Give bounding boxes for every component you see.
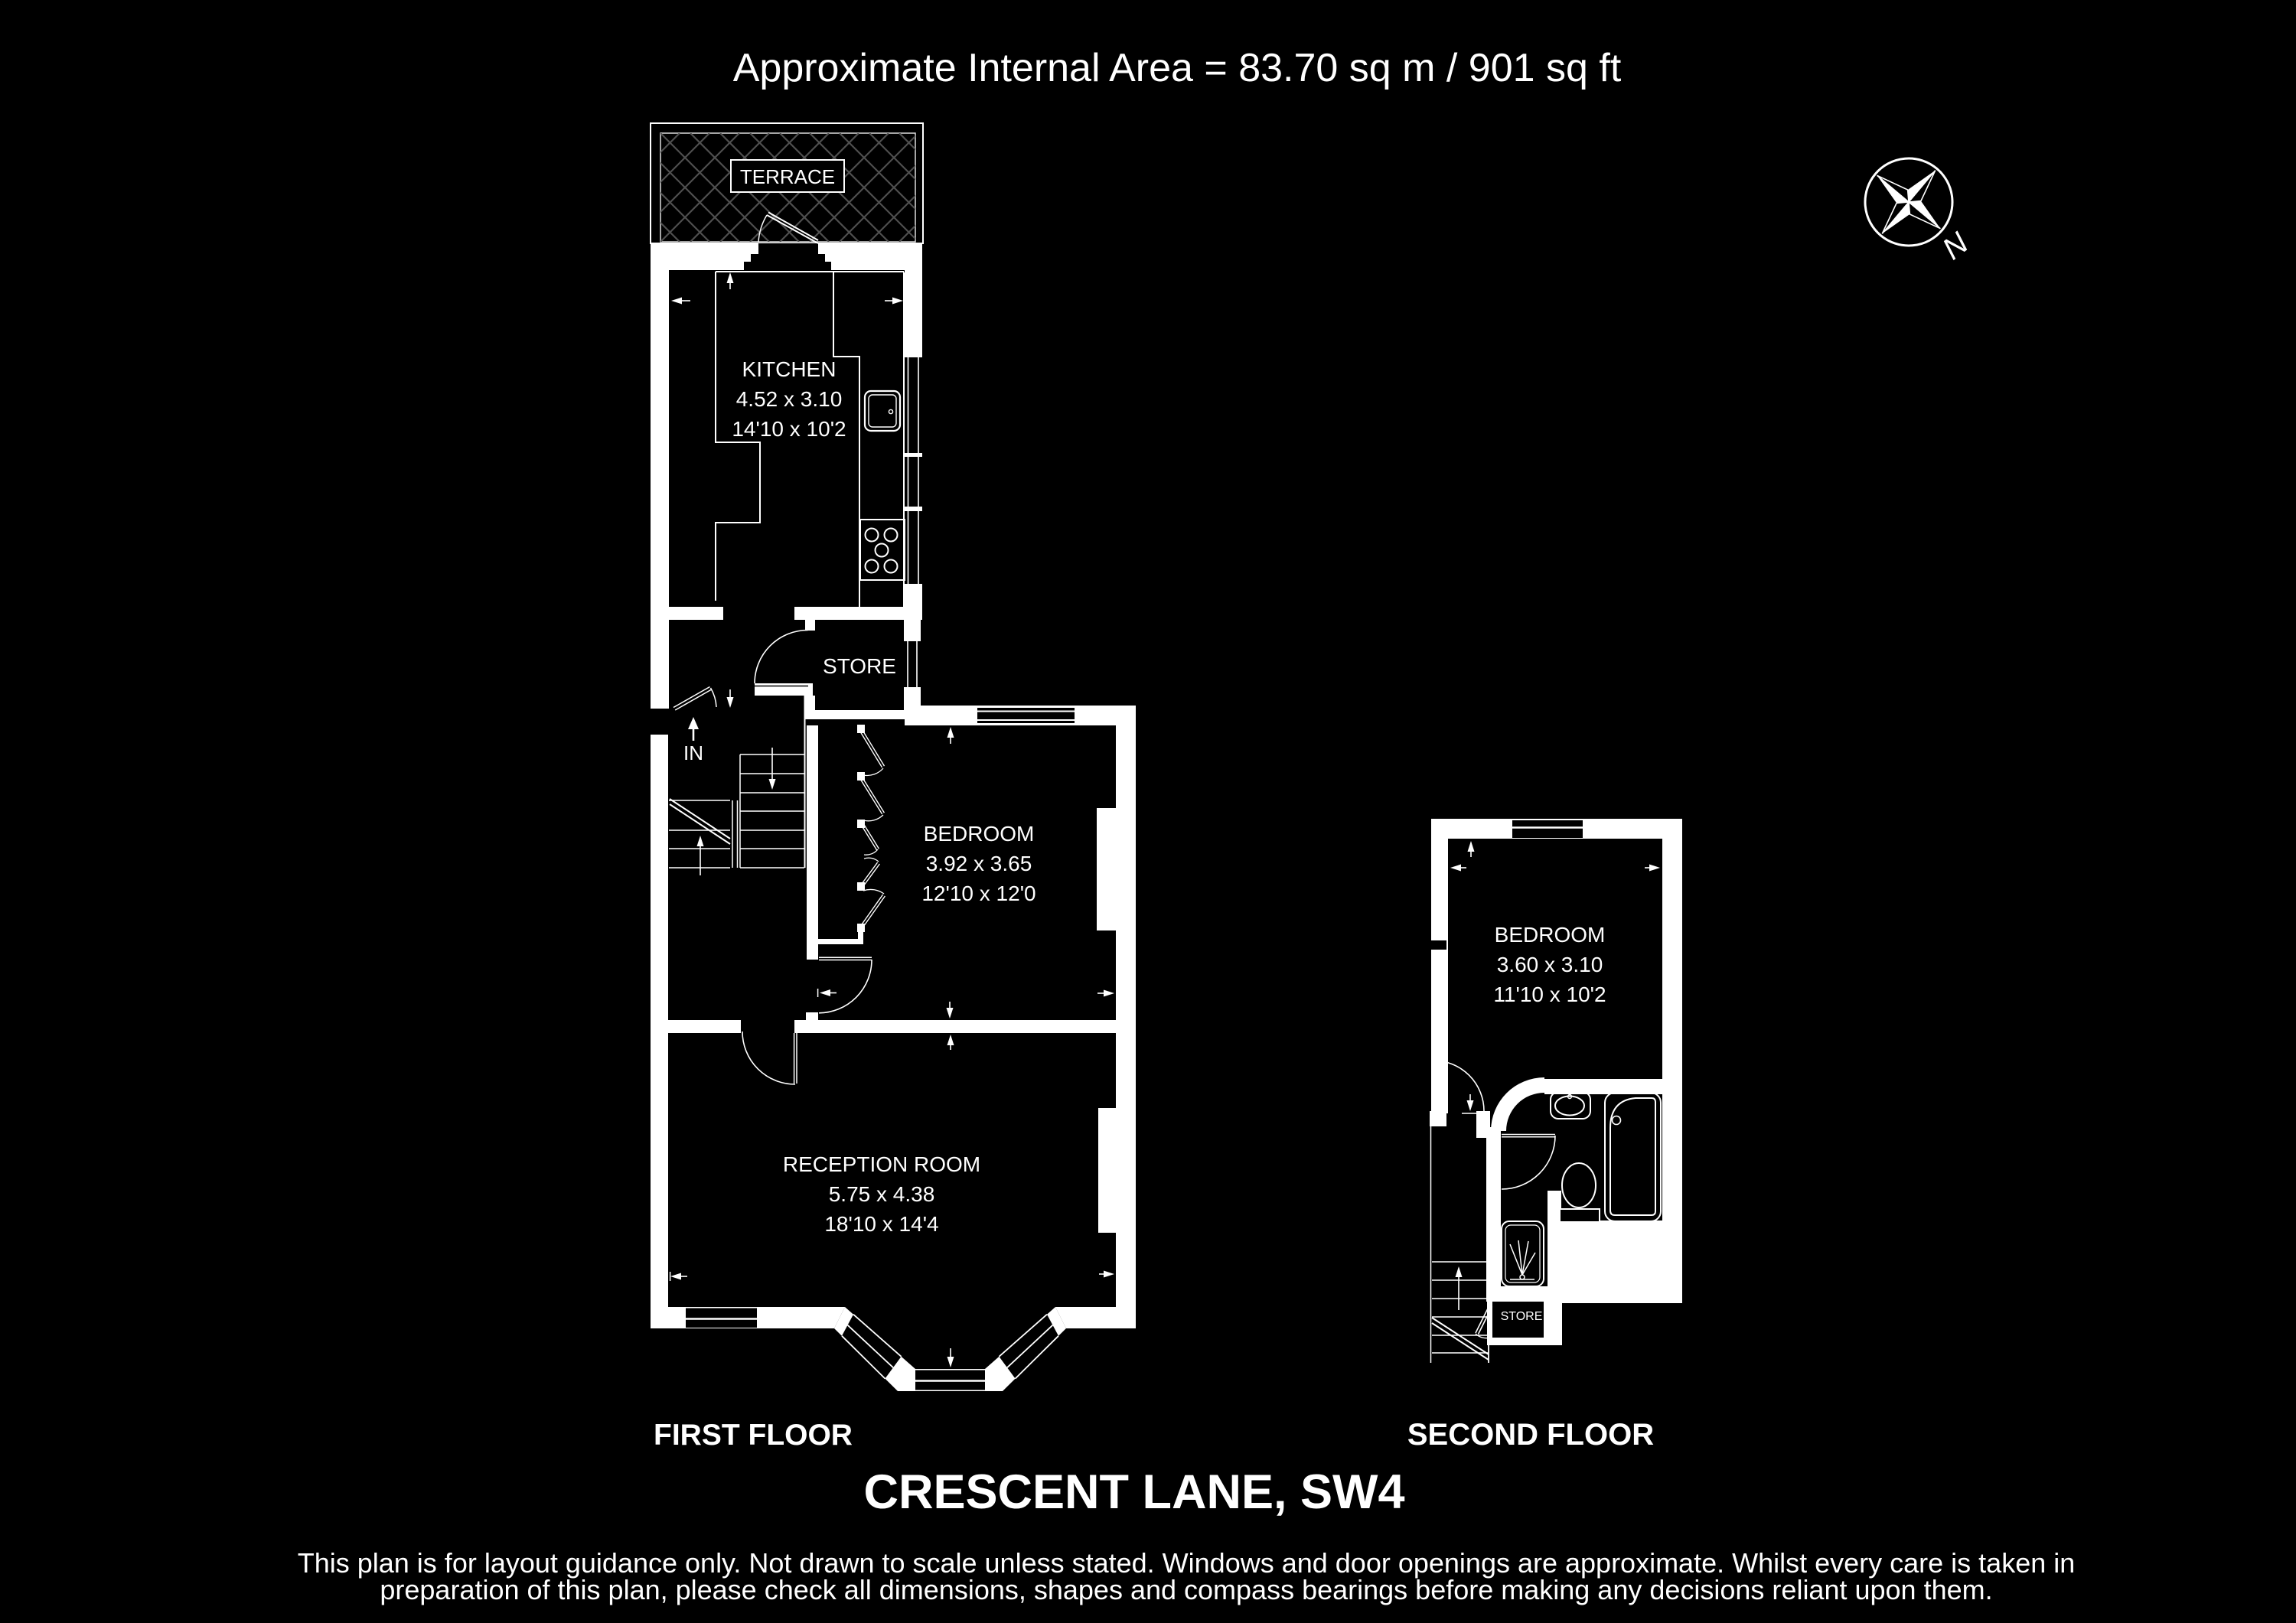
svg-text:STORE: STORE [1501,1310,1543,1323]
svg-text:SECOND FLOOR: SECOND FLOOR [1407,1418,1654,1452]
svg-text:3.92 x 3.65: 3.92 x 3.65 [926,852,1032,875]
svg-text:STORE: STORE [823,654,896,678]
svg-text:BEDROOM: BEDROOM [924,822,1035,846]
svg-text:FIRST FLOOR: FIRST FLOOR [654,1419,853,1452]
svg-text:KITCHEN: KITCHEN [742,357,837,381]
svg-text:CRESCENT LANE, SW4: CRESCENT LANE, SW4 [863,1465,1404,1519]
svg-text:18'10 x 14'4: 18'10 x 14'4 [824,1212,938,1236]
svg-text:IN: IN [683,741,703,764]
svg-text:3.60 x 3.10: 3.60 x 3.10 [1497,953,1603,976]
svg-text:4.52 x 3.10: 4.52 x 3.10 [736,387,843,411]
svg-text:TERRACE: TERRACE [740,165,835,188]
svg-text:BEDROOM: BEDROOM [1495,923,1606,947]
svg-text:RECEPTION ROOM: RECEPTION ROOM [783,1152,980,1176]
svg-text:preparation of this plan, plea: preparation of this plan, please check a… [380,1574,1992,1605]
svg-text:5.75 x 4.38: 5.75 x 4.38 [829,1182,935,1206]
svg-text:11'10 x 10'2: 11'10 x 10'2 [1493,983,1606,1006]
svg-text:12'10 x 12'0: 12'10 x 12'0 [921,882,1035,905]
svg-text:14'10 x 10'2: 14'10 x 10'2 [732,417,846,441]
svg-text:Approximate Internal Area = 83: Approximate Internal Area = 83.70 sq m /… [733,46,1622,90]
